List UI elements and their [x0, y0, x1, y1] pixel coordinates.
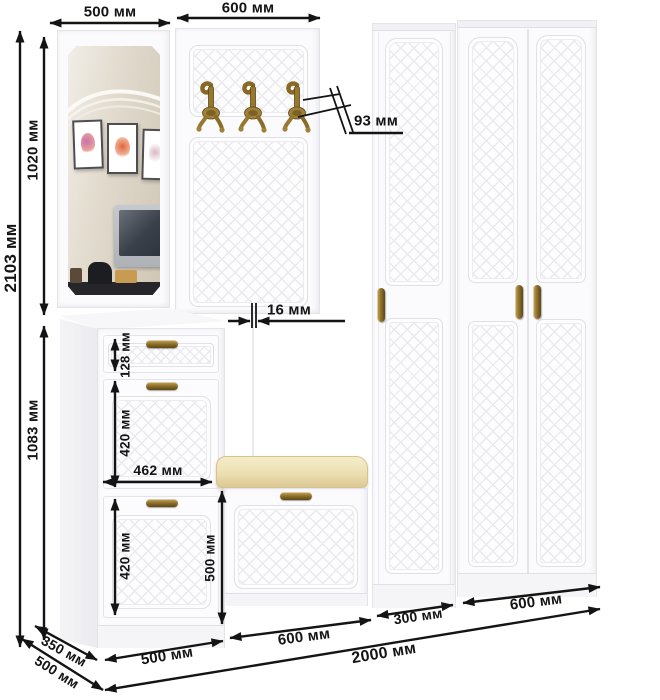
right-door-lower-quilting	[536, 319, 586, 567]
door-handle	[515, 285, 523, 319]
picture-frame	[107, 123, 138, 174]
narrow-wardrobe-top	[373, 24, 455, 31]
shoe-cabinet	[97, 328, 225, 648]
shelf-reflection	[68, 282, 160, 295]
picture-frame	[141, 129, 160, 181]
dim-lower-height: 1083 мм	[25, 399, 42, 460]
narrow-wardrobe	[372, 23, 456, 608]
bag-reflection	[88, 262, 112, 284]
diagram-canvas: 500 мм 600 мм 2103 мм 1020 мм 1083 мм 93…	[0, 0, 660, 700]
bench-cushion	[216, 456, 368, 488]
tv-screen	[119, 210, 160, 256]
mirror-cabinet	[57, 30, 170, 308]
narrow-door-lower-quilting	[385, 318, 443, 574]
door-gap	[527, 29, 529, 589]
dim-hook-offset: 93 мм	[354, 113, 398, 130]
coat-panel-lower-quilting	[189, 137, 308, 307]
dim-base-total: 2000 мм	[350, 640, 417, 668]
dim-drawer-height: 128 мм	[118, 332, 133, 378]
double-wardrobe-plinth	[458, 573, 596, 597]
drawer-handle	[146, 340, 178, 348]
coat-hook-icon	[280, 81, 314, 133]
dim-top-mid-width: 600 мм	[222, 0, 275, 17]
shelf-objects-reflection	[70, 268, 82, 283]
door-handle	[533, 285, 541, 319]
double-wardrobe-top	[458, 21, 596, 28]
shoe-cabinet-plinth	[98, 625, 224, 648]
dim-upper-flap-height: 420 мм	[118, 409, 133, 456]
dim-base-bench: 600 мм	[277, 625, 331, 649]
toys-reflection	[115, 270, 137, 283]
flap-handle	[146, 499, 178, 507]
narrow-door-upper-quilting	[385, 38, 443, 286]
right-door-upper-quilting	[536, 35, 586, 283]
left-door-lower-quilting	[468, 321, 518, 567]
dim-panel-thickness: 16 мм	[267, 302, 311, 319]
dim-upper-height: 1020 мм	[25, 119, 42, 180]
coat-rack-panel	[175, 28, 320, 314]
left-door-upper-quilting	[468, 37, 518, 283]
back-panel-edge	[252, 314, 254, 456]
double-wardrobe	[457, 20, 597, 597]
dim-lower-flap-height: 420 мм	[118, 532, 133, 579]
narrow-wardrobe-plinth	[373, 584, 455, 608]
shoe-cabinet-side	[60, 314, 98, 648]
bench-handle	[280, 492, 312, 500]
coat-hook-icon	[236, 81, 270, 133]
tv-reflection	[114, 205, 160, 267]
dim-inner-width: 462 мм	[133, 462, 182, 478]
coat-hook-icon	[194, 81, 228, 133]
bench	[224, 488, 368, 606]
bench-quilting	[234, 505, 358, 589]
bench-plinth	[225, 593, 367, 606]
dim-bench-height: 500 мм	[203, 534, 218, 581]
picture-frame	[72, 119, 104, 169]
flap-handle	[146, 382, 178, 390]
dim-base-narrow-wardrobe: 300 мм	[393, 605, 444, 628]
dim-top-left-width: 500 мм	[84, 4, 137, 21]
mirror	[68, 46, 160, 295]
dim-total-height: 2103 мм	[1, 223, 21, 292]
door-handle	[377, 288, 385, 322]
